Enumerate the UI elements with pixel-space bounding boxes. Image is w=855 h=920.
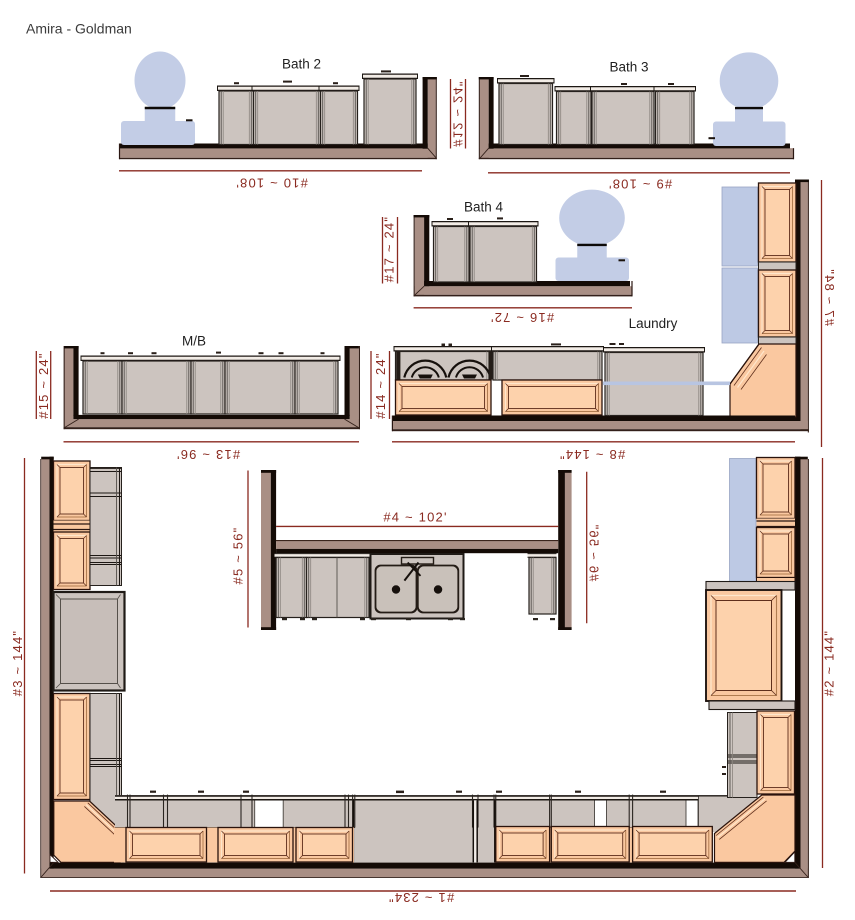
svg-text:M/B: M/B <box>182 334 206 349</box>
svg-text:Bath 3: Bath 3 <box>609 60 648 75</box>
svg-text:#8 ~ 144": #8 ~ 144" <box>559 447 625 462</box>
svg-text:Laundry: Laundry <box>629 316 678 331</box>
svg-text:#15 ~ 24": #15 ~ 24" <box>36 352 51 418</box>
svg-text:#13 ~ 96': #13 ~ 96' <box>176 447 240 462</box>
svg-text:#2 ~ 144": #2 ~ 144" <box>822 630 837 696</box>
svg-text:#3 ~ 144": #3 ~ 144" <box>10 630 25 696</box>
svg-text:#6 ~ 56": #6 ~ 56" <box>587 523 602 581</box>
svg-text:#10 ~ 108': #10 ~ 108' <box>235 176 308 191</box>
svg-text:Bath 2: Bath 2 <box>282 57 321 72</box>
svg-text:#12 ~ 24": #12 ~ 24" <box>451 80 466 146</box>
svg-text:Bath 4: Bath 4 <box>464 200 504 215</box>
svg-text:#14 ~ 24": #14 ~ 24" <box>373 352 388 418</box>
svg-text:#5 ~ 56": #5 ~ 56" <box>231 527 246 585</box>
svg-text:#4 ~ 102': #4 ~ 102' <box>383 510 447 525</box>
svg-text:Amira - Goldman: Amira - Goldman <box>26 21 132 37</box>
svg-text:#7 ~ 84": #7 ~ 84" <box>822 268 837 326</box>
svg-text:#16 ~ 72': #16 ~ 72' <box>490 310 554 325</box>
svg-text:#9 ~ 108': #9 ~ 108' <box>608 177 672 192</box>
svg-text:#1 ~ 234": #1 ~ 234" <box>388 890 454 905</box>
svg-text:#17 ~ 24": #17 ~ 24" <box>382 216 397 282</box>
